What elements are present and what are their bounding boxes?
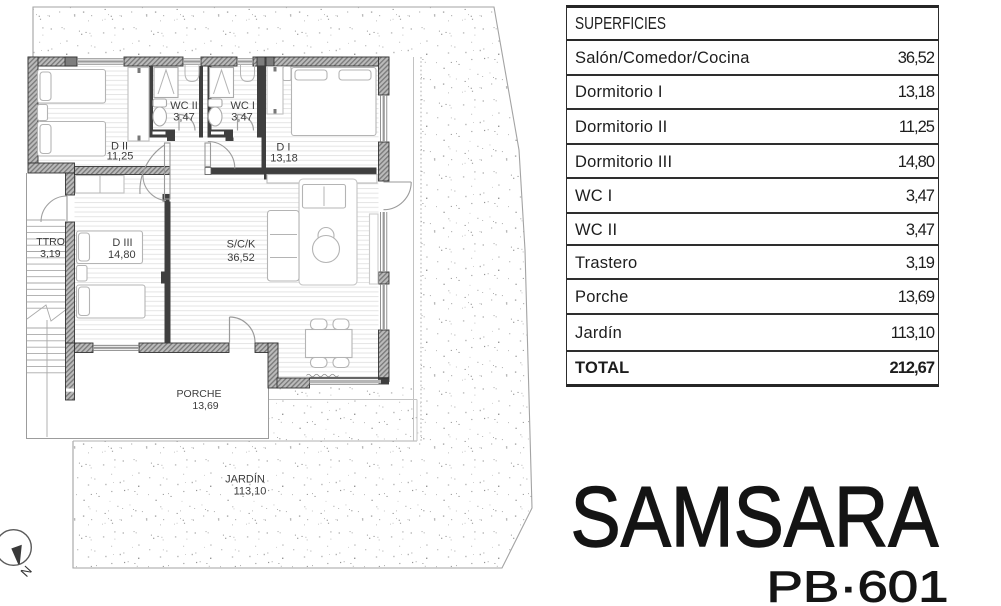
svg-text:SAMSARA: SAMSARA <box>571 470 939 565</box>
svg-text:3,47: 3,47 <box>231 112 252 124</box>
svg-text:JARDÍN: JARDÍN <box>225 473 265 486</box>
svg-text:11,25: 11,25 <box>107 151 134 163</box>
svg-text:13,69: 13,69 <box>192 400 218 412</box>
svg-text:WC II: WC II <box>170 100 198 112</box>
svg-text:PB·601: PB·601 <box>767 563 949 606</box>
svg-text:113,10: 113,10 <box>234 486 267 498</box>
svg-text:36,52: 36,52 <box>227 252 255 264</box>
svg-text:TTRO: TTRO <box>36 236 65 248</box>
svg-text:13,18: 13,18 <box>270 153 298 165</box>
svg-text:S/C/K: S/C/K <box>227 239 256 251</box>
svg-text:14,80: 14,80 <box>108 249 136 261</box>
svg-text:N: N <box>17 563 34 580</box>
svg-text:D III: D III <box>112 237 132 249</box>
svg-text:3,47: 3,47 <box>173 112 194 124</box>
svg-text:3,19: 3,19 <box>40 248 61 260</box>
svg-text:WC I: WC I <box>230 100 254 112</box>
svg-text:PORCHE: PORCHE <box>177 388 222 400</box>
